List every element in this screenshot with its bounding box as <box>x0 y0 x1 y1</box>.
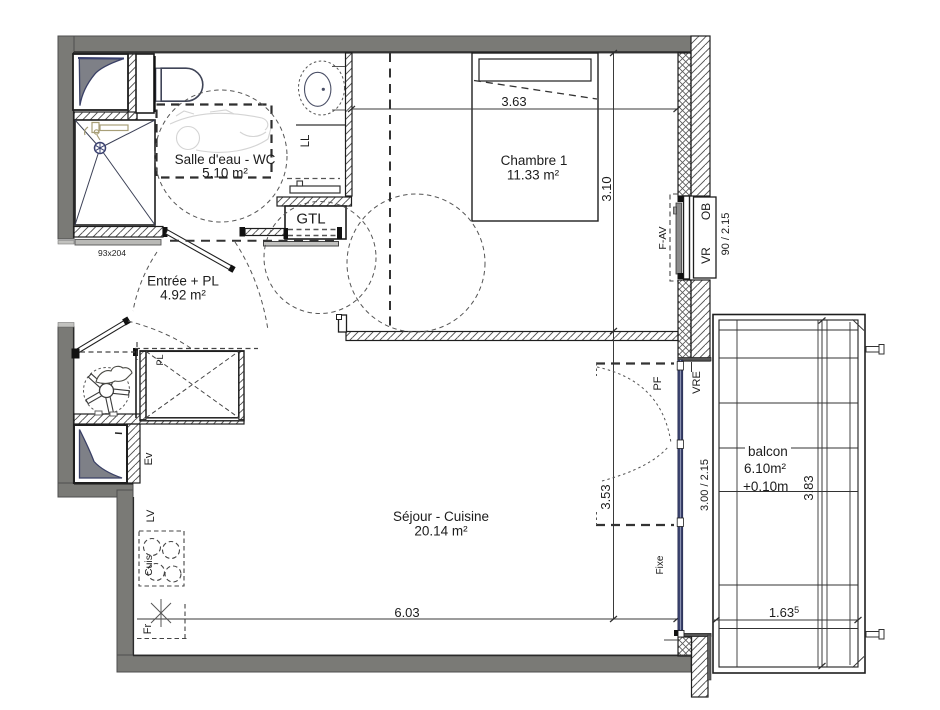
svg-text:Entrée + PL: Entrée + PL <box>147 274 219 289</box>
svg-text:6.10m²: 6.10m² <box>744 461 787 476</box>
svg-text:6.03: 6.03 <box>394 605 419 620</box>
svg-text:3.10: 3.10 <box>599 176 614 201</box>
svg-text:F-AV: F-AV <box>657 226 669 249</box>
svg-text:OB: OB <box>699 203 713 220</box>
svg-text:4.92 m²: 4.92 m² <box>160 288 206 303</box>
svg-text:3.53: 3.53 <box>598 484 613 509</box>
svg-text:VRE: VRE <box>691 371 703 394</box>
svg-text:11.33 m²: 11.33 m² <box>507 168 560 183</box>
svg-text:3.00 / 2.15: 3.00 / 2.15 <box>699 459 711 511</box>
svg-text:5.10 m²: 5.10 m² <box>202 166 248 181</box>
svg-text:3.63: 3.63 <box>501 94 526 109</box>
svg-text:93x204: 93x204 <box>98 248 126 258</box>
svg-text:balcon: balcon <box>748 444 788 459</box>
svg-text:LV: LV <box>145 509 157 522</box>
svg-text:LL: LL <box>300 134 312 147</box>
svg-text:Fr: Fr <box>142 623 154 634</box>
svg-text:+0.10m: +0.10m <box>743 479 788 494</box>
svg-text:3.83: 3.83 <box>801 475 816 500</box>
svg-text:90 / 2.15: 90 / 2.15 <box>720 213 732 256</box>
svg-text:PL: PL <box>155 354 165 365</box>
svg-text:20.14 m²: 20.14 m² <box>414 524 468 539</box>
svg-text:Cuis: Cuis <box>143 555 155 576</box>
svg-text:Chambre 1: Chambre 1 <box>501 153 568 168</box>
svg-text:VR: VR <box>699 247 713 264</box>
svg-text:Séjour - Cuisine: Séjour - Cuisine <box>393 509 489 524</box>
svg-text:GTL: GTL <box>296 211 325 228</box>
svg-text:PF: PF <box>652 376 664 390</box>
svg-text:Fixe: Fixe <box>655 555 666 574</box>
svg-text:Ev: Ev <box>143 452 155 465</box>
